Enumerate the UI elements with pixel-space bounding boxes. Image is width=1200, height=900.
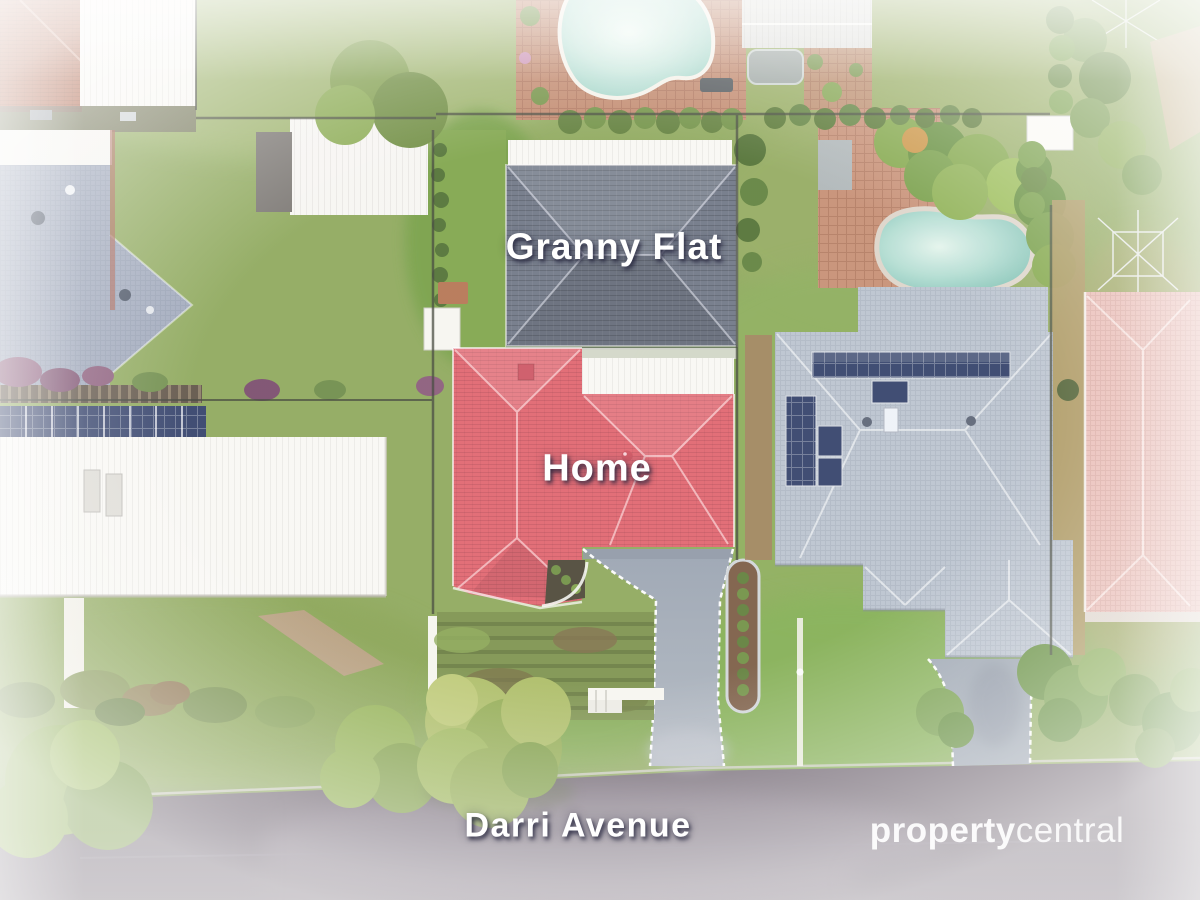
garden-shed: [424, 308, 460, 350]
white-shed-roof-topleft: [80, 0, 196, 106]
home-label: Home: [542, 448, 652, 491]
yard-clutter: [30, 110, 52, 120]
watermark-light-part: central: [1016, 811, 1125, 850]
pink-house-roof: [1085, 292, 1200, 622]
hedge-garden-bed-oval: [727, 560, 759, 712]
rear-yard-shadow: [0, 106, 196, 132]
rear-neighbour-pool-area: [516, 0, 872, 120]
granny-flat-label: Granny Flat: [506, 226, 723, 268]
roof-vent: [966, 416, 976, 426]
sun-lounge: [700, 78, 733, 92]
roof-vent: [862, 417, 872, 427]
solar-pergola-row: [0, 406, 206, 437]
agency-watermark: propertycentral: [870, 811, 1125, 851]
skylight: [884, 408, 898, 432]
yard-clutter: [120, 112, 136, 121]
watermark-bold-part: property: [870, 811, 1016, 850]
street-name-label: Darri Avenue: [464, 807, 691, 846]
aerial-photo: Granny Flat Home Darri Avenue propertyce…: [0, 0, 1200, 900]
dog-kennel: [438, 282, 468, 304]
boundary-path-line: [797, 618, 803, 766]
small-shed: [818, 140, 852, 190]
terracotta-roof: [0, 0, 82, 112]
pool-right: [877, 209, 1033, 293]
large-white-roof-building: [0, 437, 386, 596]
side-dirt-strip: [745, 335, 772, 560]
letterbox: [797, 669, 804, 676]
